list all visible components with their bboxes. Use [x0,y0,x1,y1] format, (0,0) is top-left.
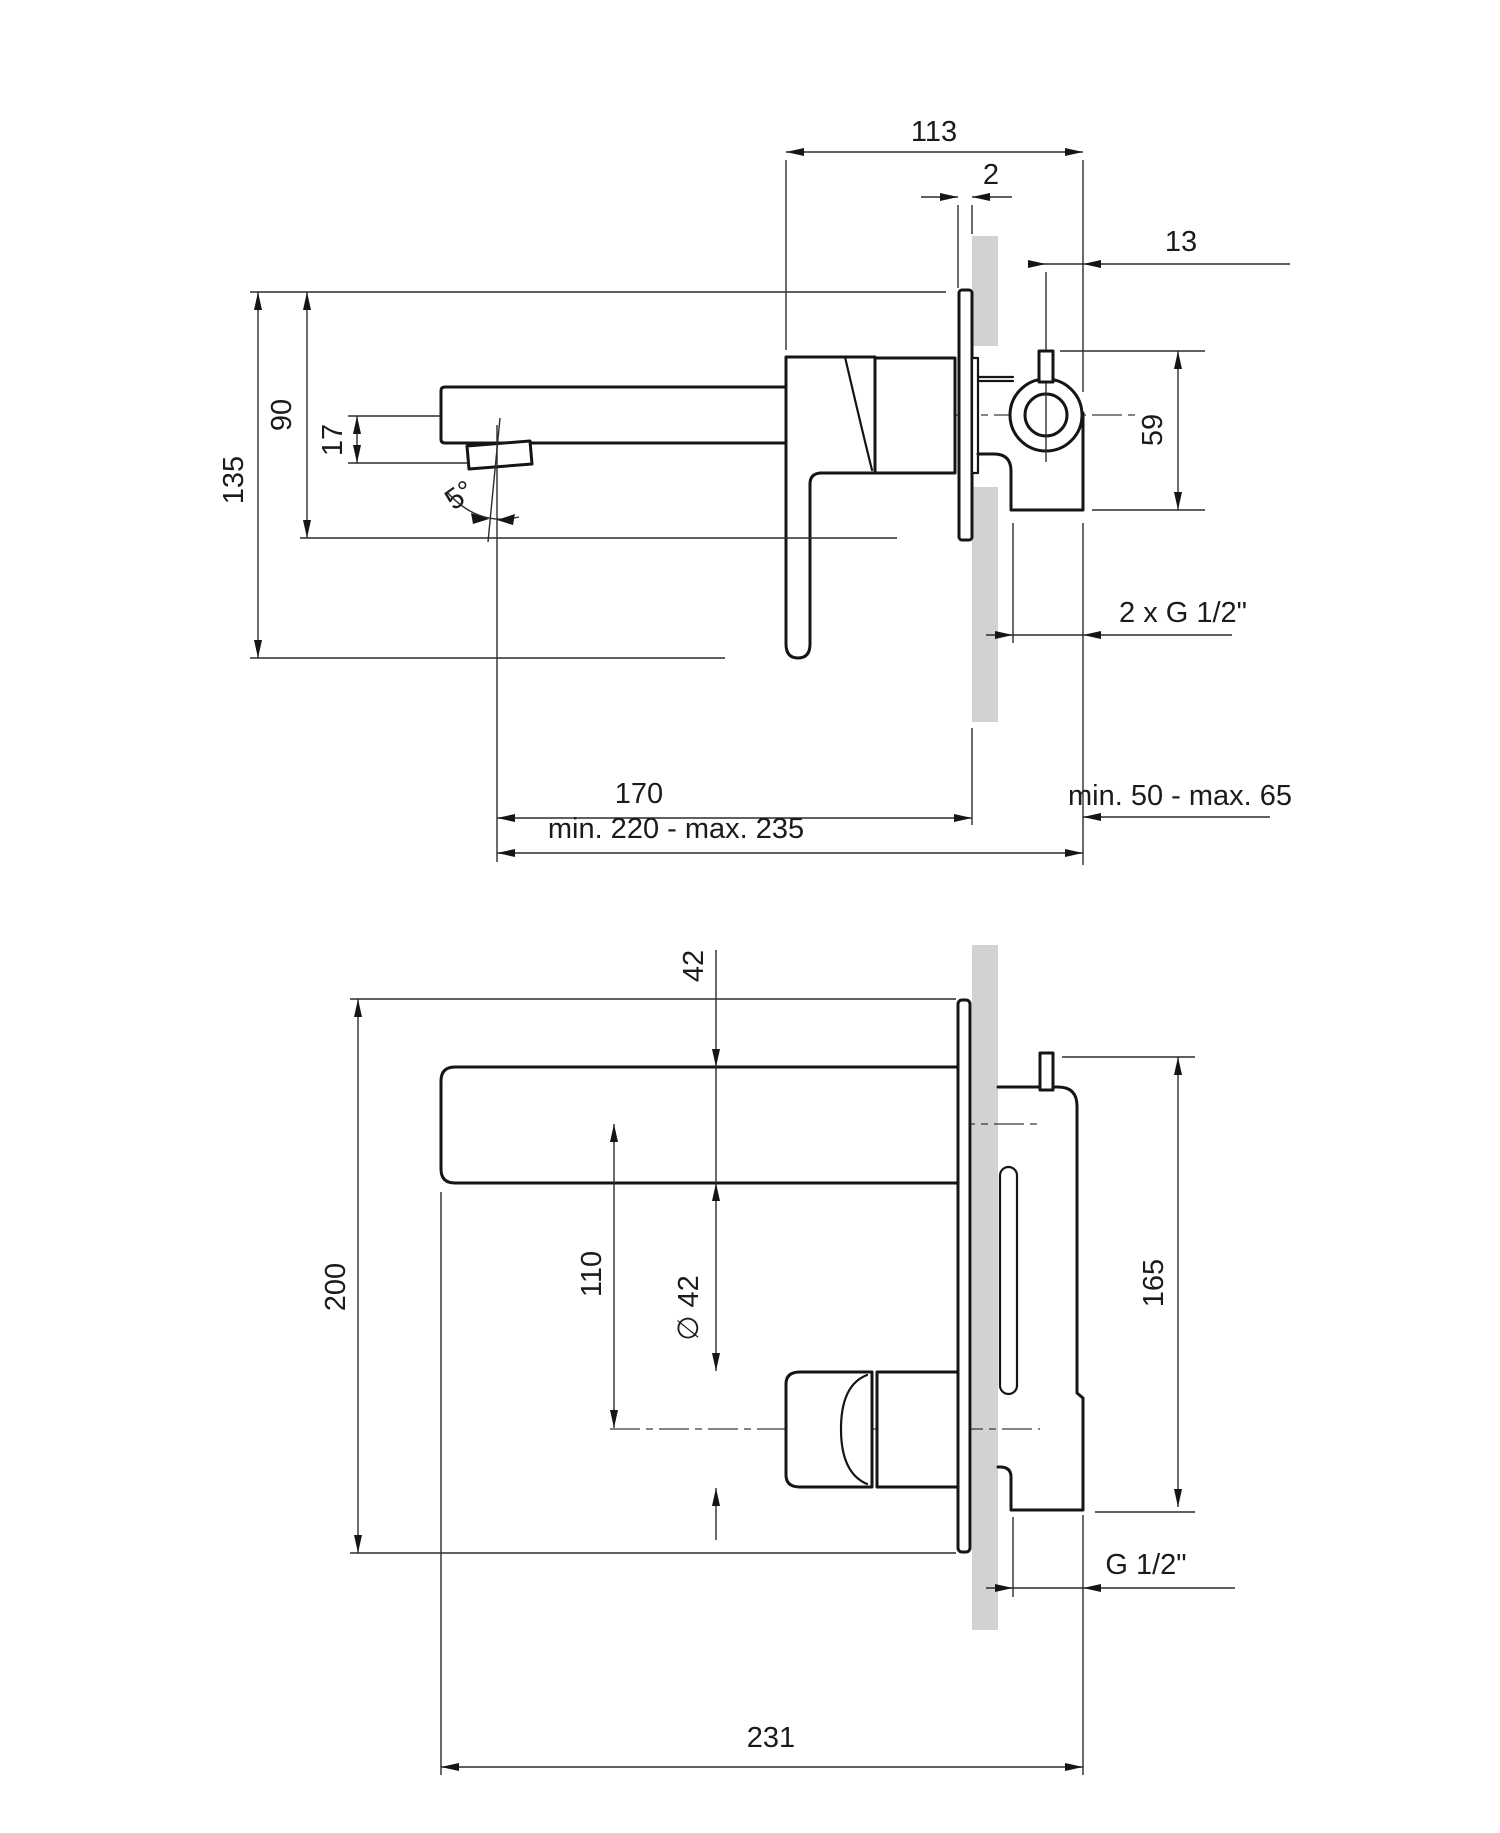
dim-pin-drop: 59 [1137,414,1169,446]
dim-spout-to-wall: 170 [615,778,663,810]
side-view-dimension-labels: 113 2 13 59 90 135 17 5° 2 x G 1/2" min.… [218,116,1292,845]
dim-spout-drop: 17 [317,424,349,456]
fixing-pin [1039,351,1053,382]
cartridge-collar-plan [877,1372,958,1487]
cartridge-housing [875,358,955,473]
dim-total-height: 135 [218,456,250,504]
handle-cap-plan [786,1372,872,1487]
dim-body-diameter: ∅ 42 [673,1275,705,1341]
side-view: 113 2 13 59 90 135 17 5° 2 x G 1/2" min.… [218,116,1292,865]
dim-spout-width: 42 [678,950,710,982]
plan-view: 42 ∅ 42 110 200 165 G 1/2" 231 [320,945,1235,1775]
dim-spout-reach: min. 220 - max. 235 [548,813,804,845]
dim-outlet-thread: G 1/2" [1105,1549,1186,1581]
mounting-slot [1000,1167,1017,1394]
faucet-dimension-drawing: 113 2 13 59 90 135 17 5° 2 x G 1/2" min.… [0,0,1500,1833]
aerator [467,441,532,469]
technical-drawing-page: 113 2 13 59 90 135 17 5° 2 x G 1/2" min.… [0,0,1500,1833]
inlet-pipe [978,377,1013,381]
spout-plan [441,1067,958,1183]
dim-axis-distance: 110 [576,1251,608,1297]
fixing-pin-plan [1040,1053,1053,1090]
dim-body-length: 113 [911,116,957,148]
dim-embed-depth: min. 50 - max. 65 [1068,780,1292,812]
dim-plate-length: 200 [320,1263,352,1311]
dim-plate-height: 90 [266,399,298,431]
wall-plate-side [959,290,972,540]
dim-inlet-thread: 2 x G 1/2" [1119,597,1247,629]
handle-lever [786,357,875,658]
dim-total-length: 231 [747,1722,795,1754]
dim-pin-offset: 13 [1165,226,1197,258]
wall-section-upper [972,236,998,346]
spout-profile [441,387,786,443]
wall-plate-plan [958,1000,970,1552]
side-view-dimension-lines [258,152,1290,853]
side-view-extension-lines [250,160,1205,865]
plate-flange [972,358,978,473]
dim-body-height: 165 [1138,1259,1170,1307]
dim-plate-gap: 2 [983,159,999,191]
wall-section-lower [972,487,998,722]
dim-spout-angle: 5° [439,475,480,517]
wall-section-plan [972,945,998,1630]
